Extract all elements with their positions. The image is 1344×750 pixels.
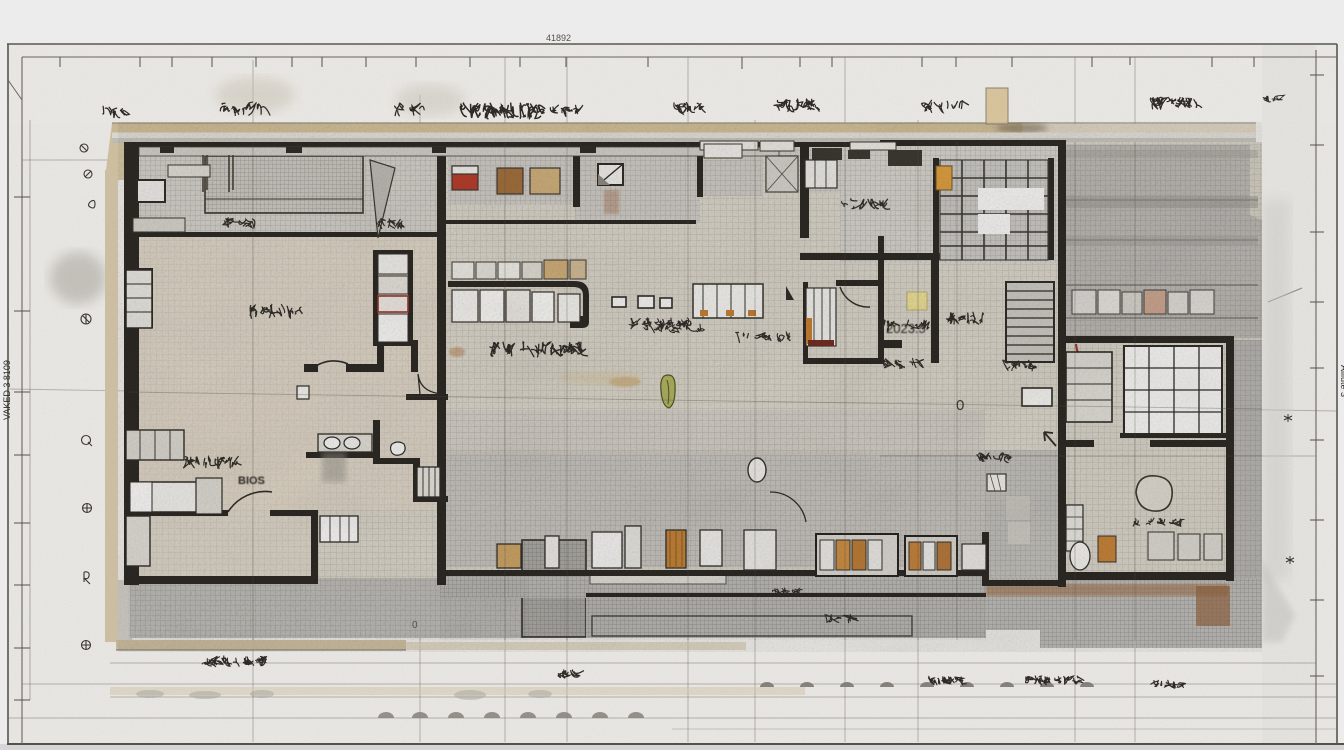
svg-text:Alliute 3: Alliute 3 [1339,365,1344,397]
svg-text:0: 0 [956,397,964,414]
svg-text:2023.5: 2023.5 [886,321,926,336]
svg-text:0: 0 [412,620,418,631]
svg-text:41892: 41892 [546,33,571,43]
svg-text:BIOS: BIOS [238,475,265,487]
svg-text:VAKED 3 8109: VAKED 3 8109 [2,360,12,420]
